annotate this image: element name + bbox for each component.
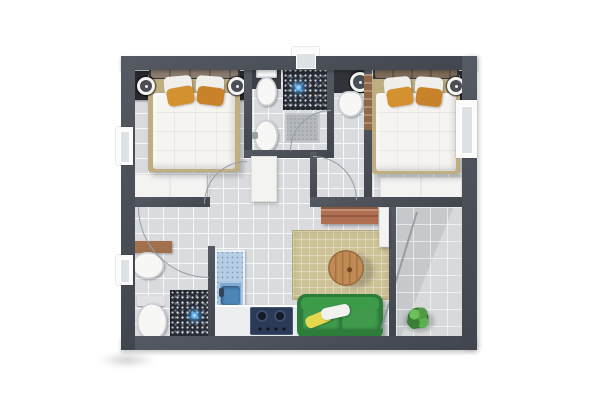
balcony-door-frame [379, 207, 389, 247]
washbasin-faucet [252, 132, 258, 139]
wall-bottom [121, 336, 477, 350]
top-opening-pane [296, 53, 316, 69]
wall-kitchen [208, 246, 215, 340]
toilet-bowl [256, 77, 277, 106]
shower-drain-icon [190, 311, 199, 320]
toilet-bathroom-3 [137, 303, 167, 340]
shower-drain-icon [294, 83, 303, 92]
stove-knobs [256, 327, 287, 331]
potted-plant-icon [406, 306, 430, 330]
wall-bedroom1-bathroom [244, 68, 252, 158]
outer-shadow [98, 352, 156, 368]
wall-left [121, 56, 135, 350]
bed-2-pillow-orange-right [415, 86, 443, 107]
wall-balcony-divider [389, 207, 396, 337]
kitchen-faucet-icon [219, 288, 224, 297]
floor-plan [0, 0, 600, 400]
window-pane [461, 106, 473, 154]
wooden-door-bedroom2 [364, 74, 372, 130]
wall-bedroom1-bottom [133, 197, 210, 207]
wardrobe-bedroom-2 [380, 177, 462, 198]
coffee-table [328, 250, 364, 286]
wardrobe-bedroom-1 [133, 174, 207, 198]
stove-burner-right-icon [274, 310, 286, 322]
bed-1-pillow-orange-right [196, 85, 225, 106]
hallway-closet [251, 156, 277, 202]
toilet-bathroom-2 [338, 91, 363, 117]
lamp-icon [137, 77, 155, 95]
window-pane [120, 259, 130, 283]
wooden-console [321, 206, 378, 224]
shower-floor-bathroom-1 [283, 63, 328, 110]
stove-burner-left-icon [256, 310, 268, 322]
bed-1-duvet [153, 93, 235, 169]
window-pane [120, 131, 130, 163]
